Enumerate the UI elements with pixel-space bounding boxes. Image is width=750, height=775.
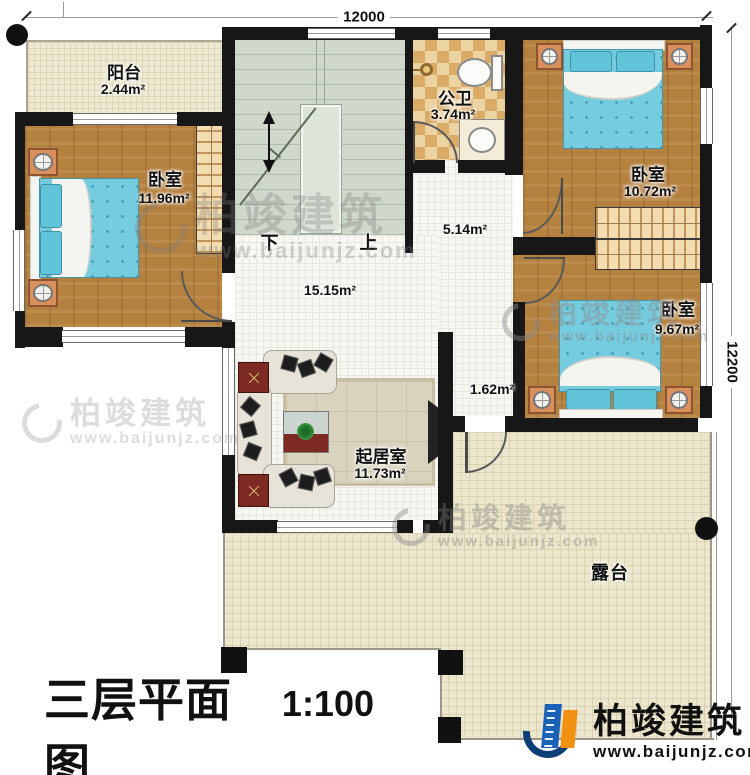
corner-cabinet xyxy=(238,474,269,507)
room-label-living: 起居室 xyxy=(356,443,407,468)
nightstand xyxy=(528,386,556,414)
cushion xyxy=(298,474,316,492)
closet xyxy=(595,207,705,239)
terrace-rail-right-outer xyxy=(716,432,717,740)
lamp-icon xyxy=(33,153,53,171)
dimension-tick xyxy=(21,11,32,22)
lamp-icon xyxy=(670,391,688,409)
dimension-top-value: 12000 xyxy=(338,9,390,26)
stairs-down-label: 下 xyxy=(261,229,280,255)
nightstand xyxy=(666,43,693,70)
wall xyxy=(222,455,235,521)
wall xyxy=(15,112,73,126)
column xyxy=(438,717,461,743)
wall xyxy=(700,25,712,90)
room-area-bedroom-top-right: 10.72m² xyxy=(624,183,676,199)
stair-arrow-stem xyxy=(268,124,270,160)
room-area-balcony: 2.44m² xyxy=(101,81,145,97)
window xyxy=(62,330,185,343)
watermark-logo-icon xyxy=(14,395,70,451)
brand-logo-icon xyxy=(523,700,587,764)
wall xyxy=(505,27,523,175)
toilet-bowl xyxy=(457,58,492,87)
shower-head-icon xyxy=(420,63,433,76)
logo-building-orange xyxy=(560,710,577,748)
room-area-bedroom-bottom-right: 9.67m² xyxy=(655,321,699,337)
window xyxy=(700,283,713,386)
wall xyxy=(700,142,712,285)
toilet-tank xyxy=(491,55,503,91)
nightstand xyxy=(536,43,563,70)
page-title: 三层平面图 xyxy=(44,664,266,775)
stair-arrow-down-icon xyxy=(263,160,275,173)
pillow xyxy=(570,51,612,72)
terrace-rail-left xyxy=(223,533,225,650)
stair-divider-line xyxy=(324,39,325,105)
pillow xyxy=(616,51,655,72)
corner-cabinet xyxy=(238,362,269,393)
title-block: 三层平面图 1:100 本层建筑面积：87.62m² 层高：3.3m xyxy=(44,664,374,775)
round-column xyxy=(6,24,28,46)
dimension-tick xyxy=(701,11,712,22)
stair-arrow-up-icon xyxy=(263,111,275,124)
stair-divider-line xyxy=(316,39,317,105)
stairs-up-label: 上 xyxy=(360,229,379,255)
window xyxy=(700,88,713,144)
room-label-balcony: 阳台 xyxy=(107,59,141,84)
door-leaf xyxy=(413,121,415,163)
watermark: 柏竣建筑 www.baijunjz.com xyxy=(22,398,240,447)
window xyxy=(222,348,235,455)
dimension-leader xyxy=(63,2,64,17)
sink-basin xyxy=(468,127,496,153)
wall xyxy=(513,302,525,418)
window xyxy=(308,28,395,39)
wall xyxy=(513,237,595,255)
lamp-icon xyxy=(33,284,53,302)
wall xyxy=(438,332,453,527)
door-leaf xyxy=(524,257,565,259)
pillow xyxy=(613,389,657,410)
door-leaf xyxy=(465,432,468,473)
plant-icon xyxy=(297,423,314,440)
round-column xyxy=(695,517,718,540)
nightstand xyxy=(28,279,58,307)
room-label-terrace: 露台 xyxy=(591,559,629,585)
pillow xyxy=(40,184,62,228)
wall xyxy=(222,27,235,273)
area-corridor: 5.14m² xyxy=(443,221,487,237)
wall xyxy=(222,322,235,348)
brand-url: www.baijunjz.com xyxy=(593,743,750,760)
wall xyxy=(700,385,712,418)
brand-logo: 柏竣建筑 www.baijunjz.com xyxy=(523,700,750,764)
wall xyxy=(458,160,523,173)
wall xyxy=(15,112,25,232)
door-leaf xyxy=(561,178,563,234)
area-vestibule: 1.62m² xyxy=(470,381,514,397)
lamp-icon xyxy=(541,48,558,65)
wall xyxy=(15,327,63,347)
watermark-url: www.baijunjz.com xyxy=(70,431,240,448)
window xyxy=(438,28,490,39)
area-hall: 15.15m² xyxy=(304,282,356,298)
wall xyxy=(177,112,222,126)
stair-shaft xyxy=(301,105,341,233)
closet xyxy=(595,239,705,270)
column xyxy=(438,650,463,675)
nightstand xyxy=(665,386,693,414)
pillow xyxy=(566,389,611,410)
room-label-bedroom-left: 卧室 xyxy=(148,166,182,191)
pillow xyxy=(40,231,62,275)
window xyxy=(13,230,25,311)
terrace-floor-main xyxy=(224,533,712,650)
door-leaf xyxy=(181,320,232,322)
wall xyxy=(453,416,465,432)
floor-plan: 阳台 2.44m² 卧室 11.96m² 公卫 3.74m² 卧室 10.72m… xyxy=(0,0,750,775)
window xyxy=(277,521,397,533)
wall xyxy=(397,520,413,533)
lamp-icon xyxy=(671,48,688,65)
room-label-bedroom-top-right: 卧室 xyxy=(631,161,665,186)
dimension-right-value: 12200 xyxy=(724,336,741,388)
nightstand xyxy=(28,148,58,176)
room-area-bathroom: 3.74m² xyxy=(431,106,475,122)
drawing-scale: 1:100 xyxy=(282,683,374,725)
terrace-rail-bottom-left xyxy=(223,648,441,650)
room-label-bedroom-bottom-right: 卧室 xyxy=(661,296,695,321)
room-area-bedroom-left: 11.96m² xyxy=(138,190,189,206)
wall xyxy=(405,27,413,253)
room-area-living: 11.73m² xyxy=(354,465,405,481)
brand-name: 柏竣建筑 xyxy=(593,704,750,739)
balcony-door-sill xyxy=(73,113,177,125)
terrace-rail-right xyxy=(710,432,712,740)
wall xyxy=(513,418,698,432)
watermark-text: 柏竣建筑 www.baijunjz.com xyxy=(70,398,240,447)
watermark-brand: 柏竣建筑 xyxy=(70,398,240,431)
wall xyxy=(222,520,278,533)
lamp-icon xyxy=(533,391,551,409)
